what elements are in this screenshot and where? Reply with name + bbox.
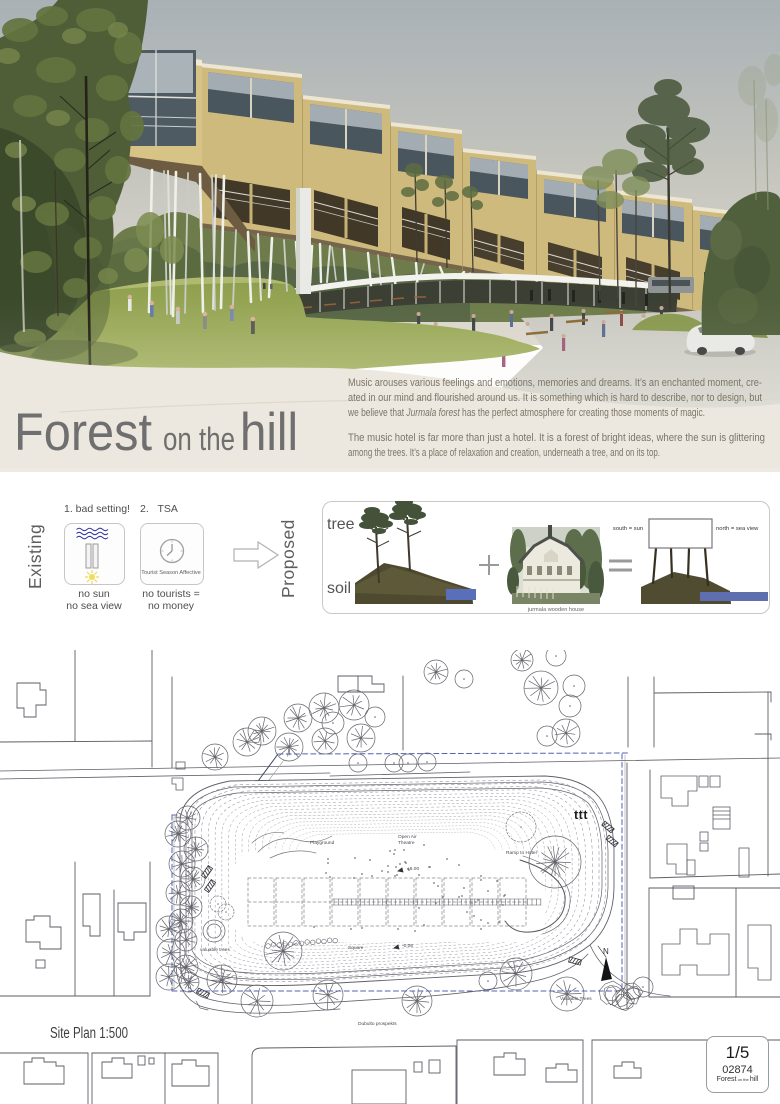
svg-text:Valuable Trees: Valuable Trees xyxy=(560,996,592,1002)
svg-text:Square: Square xyxy=(348,945,364,951)
svg-text:valuable trees: valuable trees xyxy=(200,947,230,953)
svg-text:ttt: ttt xyxy=(574,808,588,822)
svg-text:south = sun: south = sun xyxy=(613,526,643,532)
svg-text:Theatre: Theatre xyxy=(398,840,415,846)
svg-text:we believe that Jurmala forest: we believe that Jurmala forest has the p… xyxy=(348,407,705,419)
svg-text:Music arouses various feelings: Music arouses various feelings and emoti… xyxy=(348,377,762,389)
svg-text:-0.08: -0.08 xyxy=(402,943,413,949)
svg-text:hill: hill xyxy=(240,403,298,462)
svg-text:soil: soil xyxy=(327,580,351,597)
svg-text:among the trees. It’s a place: among the trees. It’s a place of relaxat… xyxy=(348,447,660,459)
svg-text:on the: on the xyxy=(163,421,235,457)
svg-text:+6.00: +6.00 xyxy=(407,866,419,872)
svg-text:Playground: Playground xyxy=(310,840,335,846)
svg-text:ated in our mind and flourishe: ated in our mind and flourished around u… xyxy=(348,392,762,404)
svg-text:N: N xyxy=(603,947,609,956)
svg-text:Open Air: Open Air xyxy=(398,834,417,840)
svg-text:Forest: Forest xyxy=(14,403,152,462)
svg-text:north = sea view: north = sea view xyxy=(716,526,759,532)
svg-text:jurmala wooden house: jurmala wooden house xyxy=(527,607,584,612)
svg-text:Dubulto prospekts: Dubulto prospekts xyxy=(358,1021,397,1027)
svg-text:The music hotel is far more th: The music hotel is far more than just a … xyxy=(348,432,765,444)
svg-text:Ramp to Hotel: Ramp to Hotel xyxy=(506,850,537,856)
svg-text:tree: tree xyxy=(327,516,355,533)
svg-text:Site Plan 1:500: Site Plan 1:500 xyxy=(50,1025,128,1042)
